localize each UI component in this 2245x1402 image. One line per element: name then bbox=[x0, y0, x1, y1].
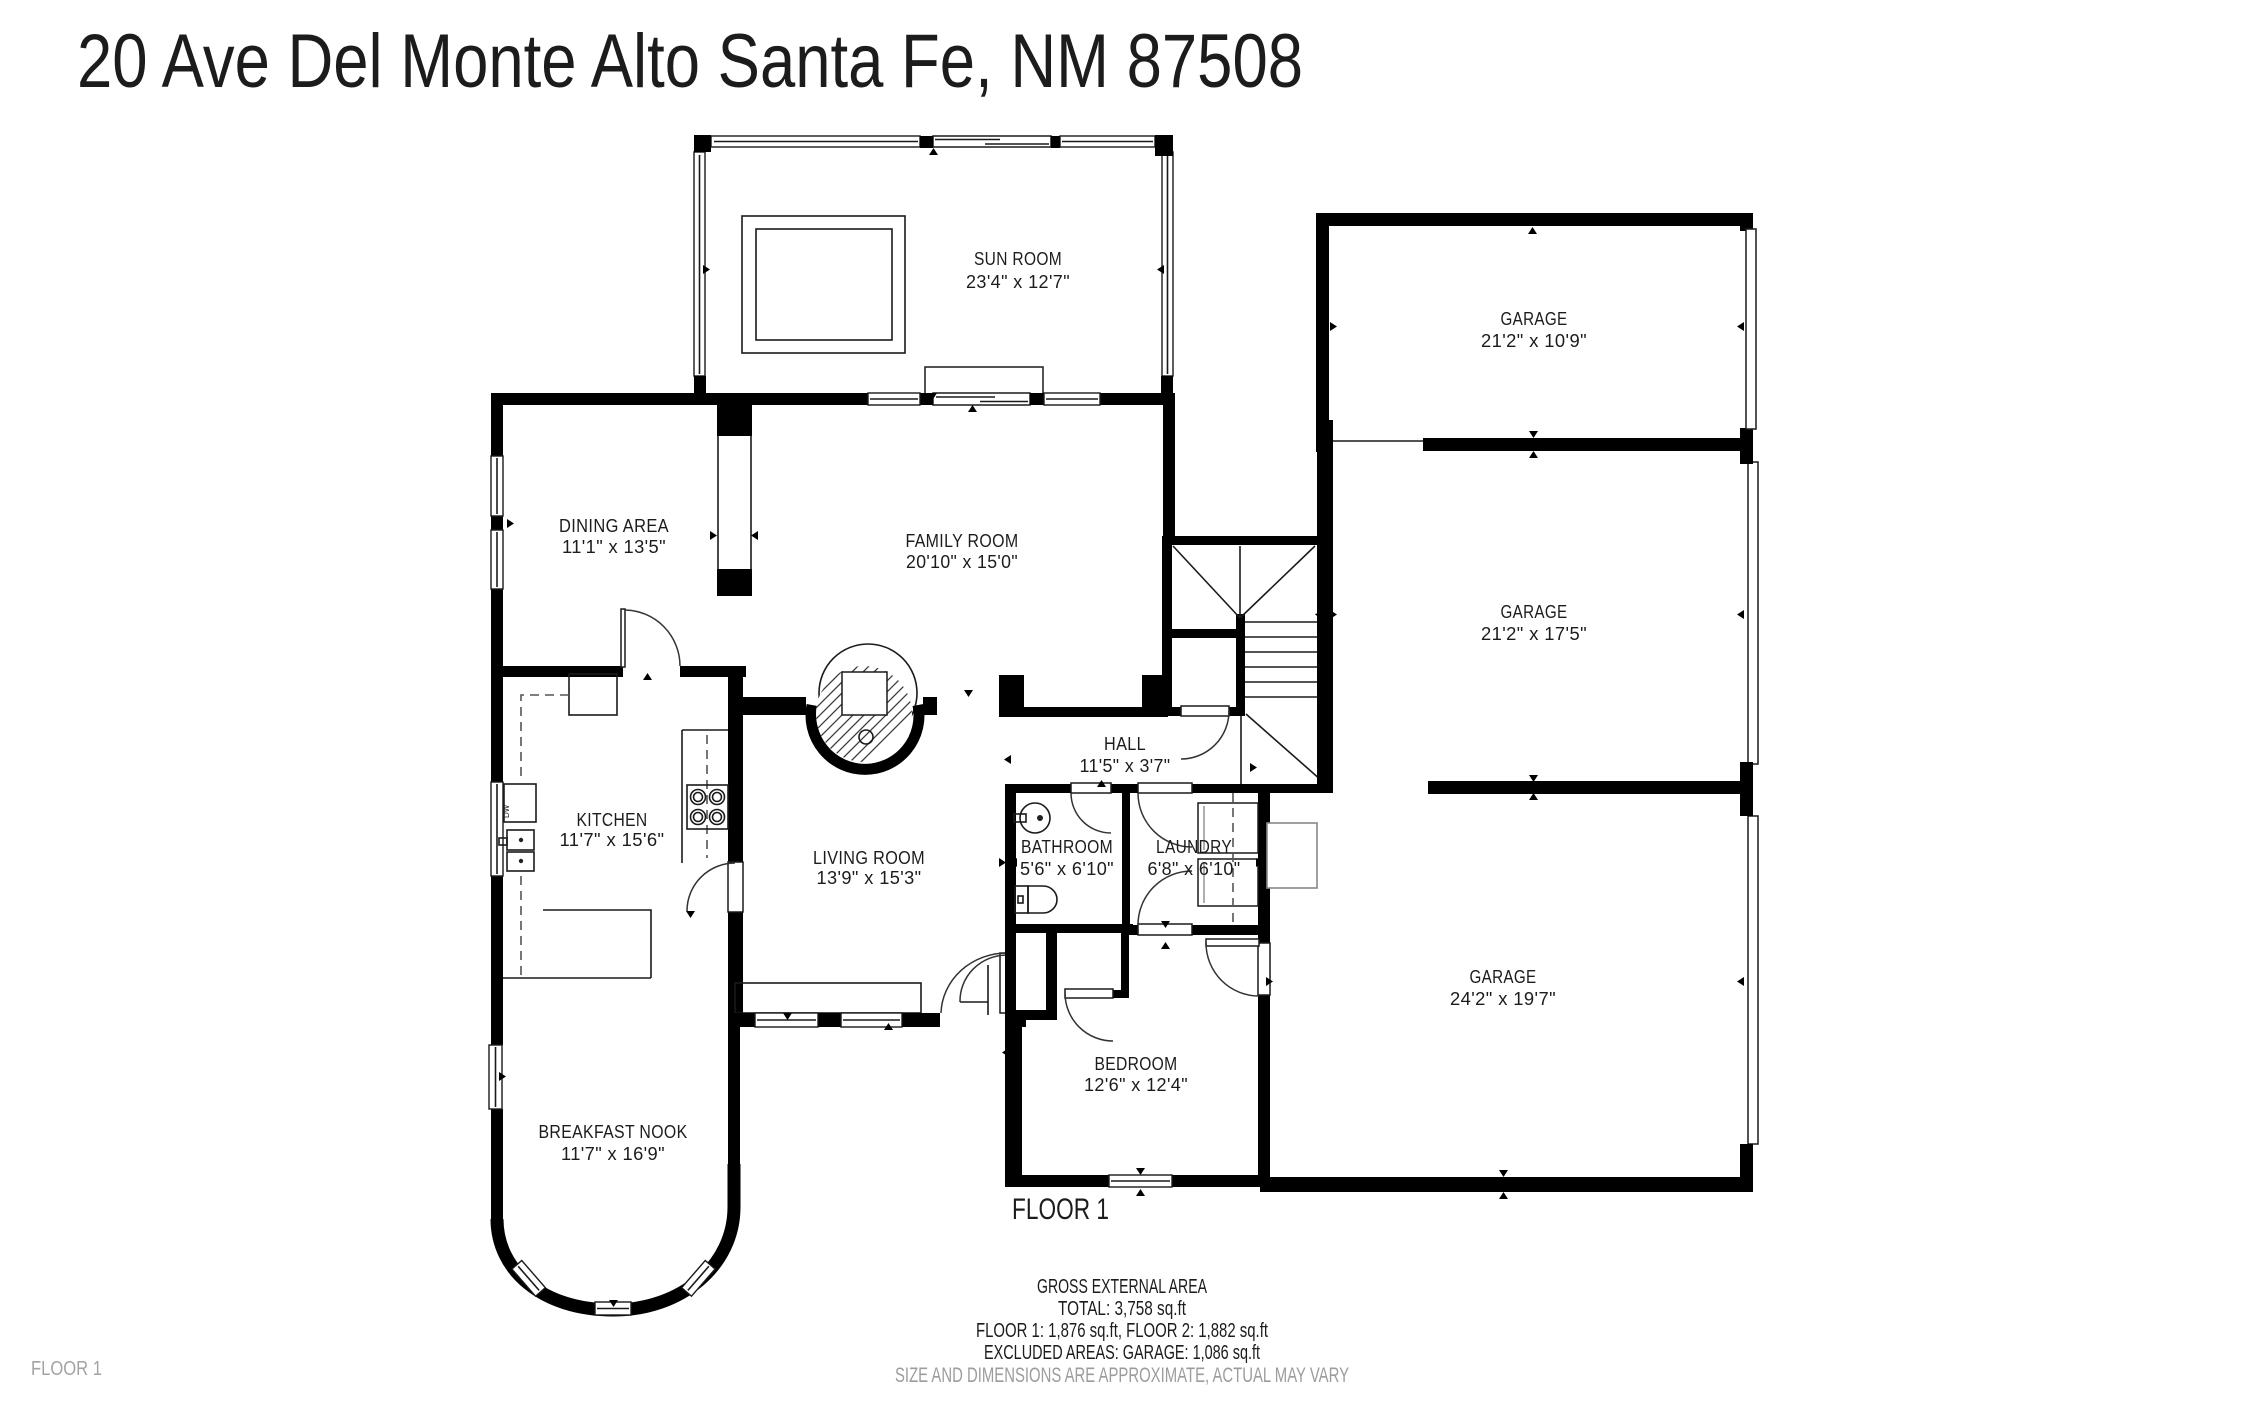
svg-text:FLOOR 1: FLOOR 1 bbox=[31, 1358, 102, 1380]
svg-text:BEDROOM: BEDROOM bbox=[1095, 1053, 1178, 1074]
svg-text:GARAGE: GARAGE bbox=[1501, 308, 1568, 329]
svg-text:20 Ave Del Monte Alto Santa Fe: 20 Ave Del Monte Alto Santa Fe, NM 87508 bbox=[77, 19, 1303, 104]
svg-text:12'6" x 12'4": 12'6" x 12'4" bbox=[1084, 1074, 1188, 1095]
svg-text:23'4" x 12'7": 23'4" x 12'7" bbox=[966, 271, 1070, 292]
svg-text:GARAGE: GARAGE bbox=[1501, 601, 1568, 622]
svg-text:EXCLUDED AREAS: GARAGE: 1,086: EXCLUDED AREAS: GARAGE: 1,086 sq.ft bbox=[984, 1342, 1260, 1364]
svg-text:11'7" x 15'6": 11'7" x 15'6" bbox=[560, 829, 665, 850]
svg-text:SUN ROOM: SUN ROOM bbox=[974, 248, 1062, 269]
svg-text:LAUNDRY: LAUNDRY bbox=[1156, 836, 1232, 857]
svg-text:BREAKFAST NOOK: BREAKFAST NOOK bbox=[539, 1121, 688, 1142]
svg-text:GARAGE: GARAGE bbox=[1470, 966, 1537, 987]
svg-text:FLOOR 1: FLOOR 1 bbox=[1012, 1193, 1109, 1226]
svg-text:DW: DW bbox=[502, 804, 511, 818]
svg-text:5'6" x 6'10": 5'6" x 6'10" bbox=[1020, 858, 1114, 879]
svg-text:20'10" x 15'0": 20'10" x 15'0" bbox=[906, 551, 1018, 572]
svg-text:SIZE AND DIMENSIONS ARE APPROX: SIZE AND DIMENSIONS ARE APPROXIMATE, ACT… bbox=[895, 1364, 1349, 1387]
svg-text:24'2" x 19'7": 24'2" x 19'7" bbox=[1450, 988, 1556, 1009]
svg-text:11'5" x 3'7": 11'5" x 3'7" bbox=[1080, 755, 1171, 776]
svg-text:11'7" x 16'9": 11'7" x 16'9" bbox=[561, 1143, 665, 1164]
svg-text:BATHROOM: BATHROOM bbox=[1021, 836, 1113, 857]
svg-text:11'1" x 13'5": 11'1" x 13'5" bbox=[562, 536, 666, 557]
svg-text:GROSS EXTERNAL AREA: GROSS EXTERNAL AREA bbox=[1037, 1276, 1207, 1298]
svg-text:21'2" x 17'5": 21'2" x 17'5" bbox=[1481, 623, 1587, 644]
svg-text:HALL: HALL bbox=[1104, 733, 1146, 754]
svg-text:6'8" x 6'10": 6'8" x 6'10" bbox=[1148, 858, 1241, 879]
svg-text:DINING AREA: DINING AREA bbox=[559, 515, 669, 536]
svg-text:13'9" x 15'3": 13'9" x 15'3" bbox=[817, 867, 922, 888]
svg-text:LIVING ROOM: LIVING ROOM bbox=[813, 847, 925, 868]
svg-text:FLOOR 1: 1,876 sq.ft, FLOOR 2:: FLOOR 1: 1,876 sq.ft, FLOOR 2: 1,882 sq.… bbox=[976, 1320, 1268, 1342]
svg-text:TOTAL: 3,758 sq.ft: TOTAL: 3,758 sq.ft bbox=[1058, 1298, 1186, 1320]
svg-text:21'2" x 10'9": 21'2" x 10'9" bbox=[1481, 330, 1587, 351]
svg-text:KITCHEN: KITCHEN bbox=[577, 809, 648, 830]
svg-text:FAMILY ROOM: FAMILY ROOM bbox=[906, 530, 1019, 551]
